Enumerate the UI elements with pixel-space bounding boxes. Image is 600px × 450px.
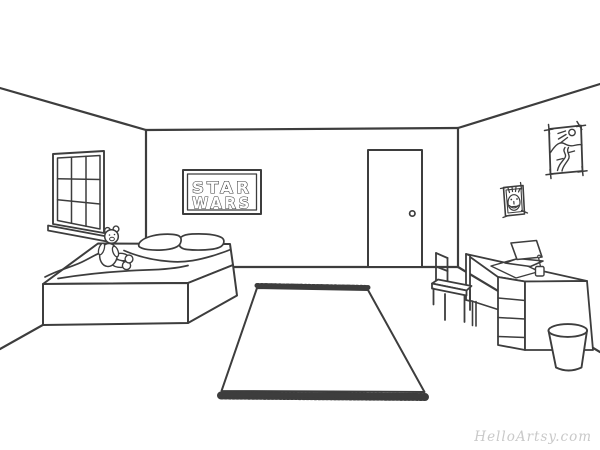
- desk-leg: [473, 301, 477, 326]
- portrait-picture: [501, 183, 528, 218]
- rug-body: [222, 288, 425, 392]
- landscape-frame: [549, 126, 583, 175]
- pencil-cup: [536, 267, 545, 277]
- teeth-line: [511, 206, 518, 207]
- ceiling-edge-left: [0, 88, 146, 130]
- window: [48, 151, 107, 242]
- door-panel: [368, 150, 422, 267]
- coloring-page: STAR WARS: [0, 0, 600, 450]
- landscape-picture: [545, 122, 588, 179]
- rug-fringe-bottom-detail: [223, 395, 424, 397]
- area-rug: [221, 285, 425, 398]
- ceiling-edge-right: [458, 84, 600, 128]
- waste-basket: [549, 324, 588, 370]
- bedroom-drawing: STAR WARS: [0, 0, 600, 450]
- pillow-right: [179, 234, 224, 250]
- watermark-text: HelloArtsy.com: [473, 429, 592, 445]
- teddy-eye: [114, 234, 116, 236]
- door: [368, 150, 422, 267]
- window-mullion-h1: [58, 179, 101, 180]
- desk-back-rail: [470, 301, 498, 310]
- star-wars-poster: STAR WARS: [183, 170, 261, 214]
- teddy-head: [105, 230, 119, 244]
- bed: [43, 226, 237, 325]
- desk-drawers: [498, 277, 525, 350]
- teddy-foot: [125, 255, 133, 263]
- eye: [510, 199, 512, 201]
- eye: [516, 198, 518, 200]
- bed-front-face: [43, 283, 188, 325]
- hair-spike: [516, 187, 517, 192]
- teddy-eye: [109, 234, 111, 236]
- poster-text-line2: WARS: [192, 194, 252, 213]
- back-wall-top-edge: [146, 128, 458, 130]
- chair-back-top-rail: [436, 253, 448, 258]
- basket-rim: [549, 324, 588, 337]
- pencil-tip: [538, 255, 541, 258]
- hair-spike: [512, 187, 513, 192]
